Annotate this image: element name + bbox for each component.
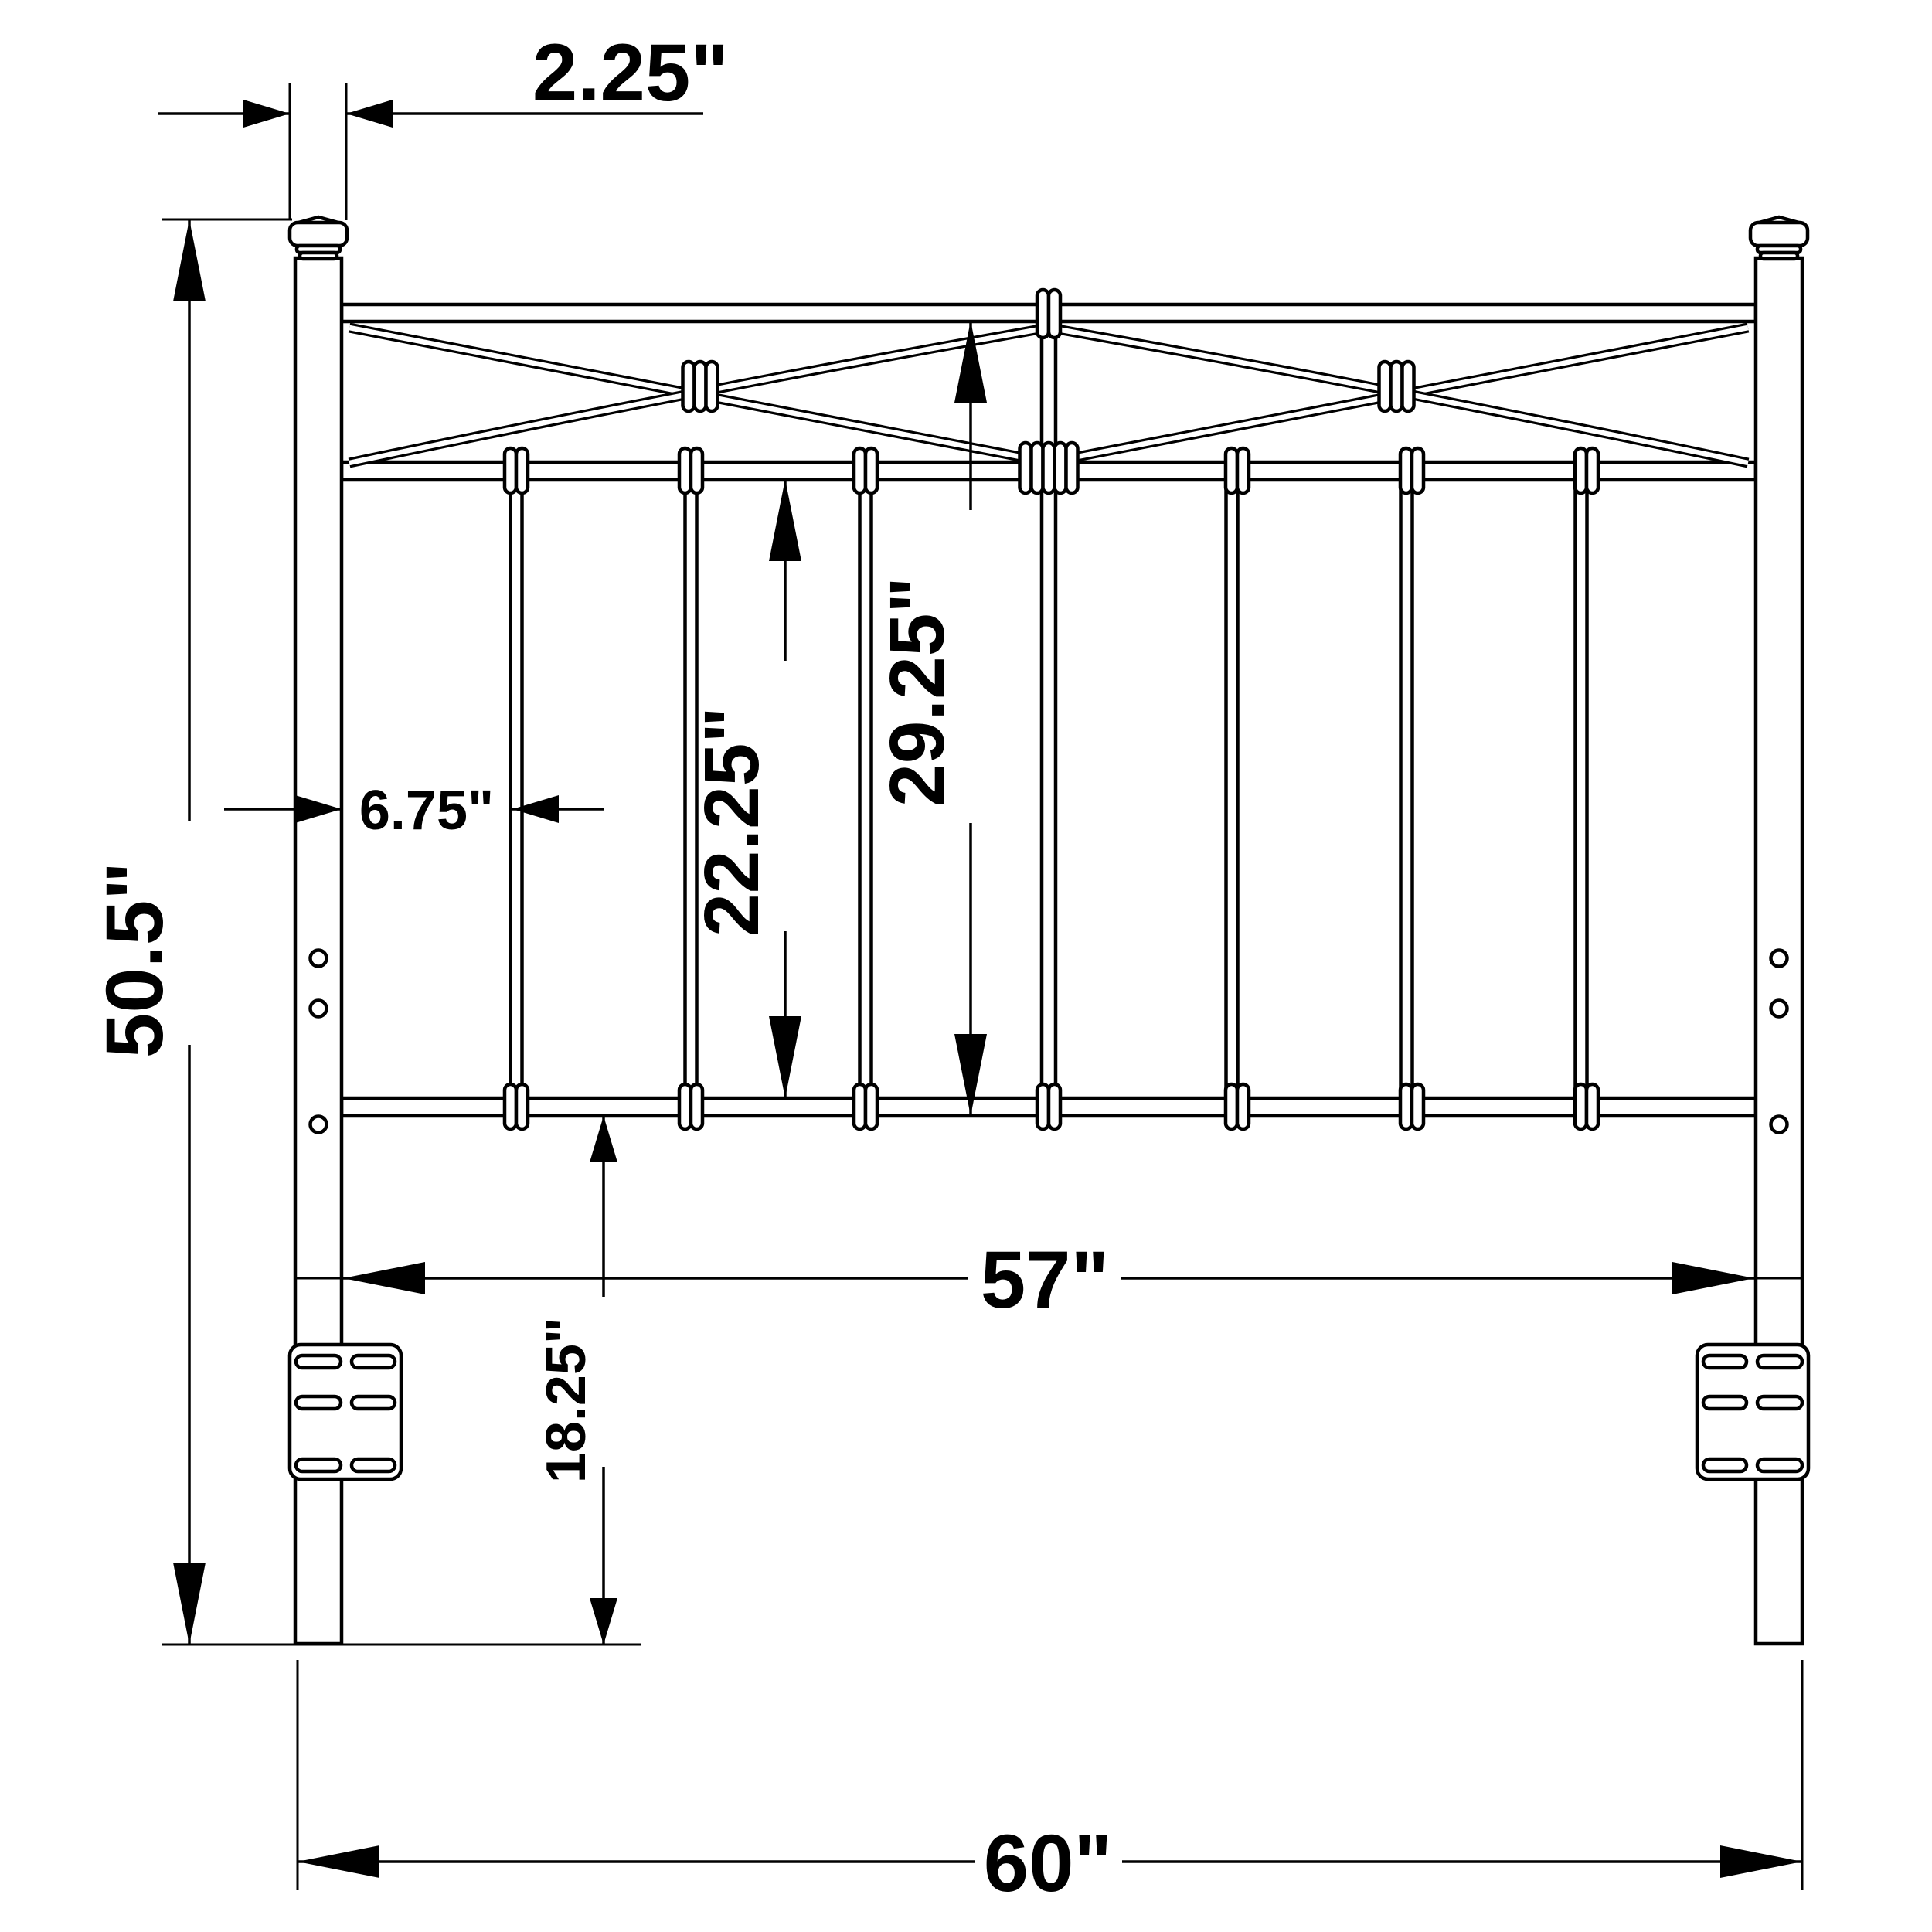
dimension-label-post-width: 2.25" xyxy=(532,28,729,118)
top-rail-center-collar xyxy=(1037,290,1060,338)
bracket-slot xyxy=(352,1355,395,1368)
spindle xyxy=(860,461,872,1117)
finial-cap xyxy=(290,223,347,246)
bracket-slot xyxy=(352,1459,395,1471)
bracket-slot xyxy=(1757,1459,1802,1471)
dimension-label-overall-width: 60" xyxy=(984,1818,1113,1909)
finial-cap xyxy=(1750,223,1808,246)
bracket-slot xyxy=(1757,1396,1802,1409)
bracket-slot xyxy=(296,1459,341,1471)
post-hole xyxy=(311,951,327,967)
dimension-label-post-to-first-spindle: 6.75" xyxy=(359,780,494,842)
bracket-slot xyxy=(1703,1459,1747,1471)
post-hole xyxy=(1771,1117,1787,1133)
spindle xyxy=(1401,461,1413,1117)
spindle xyxy=(511,461,522,1117)
left-finial xyxy=(290,217,347,259)
spindle xyxy=(1576,461,1587,1117)
collar-ring xyxy=(1403,362,1414,411)
post-hole xyxy=(1771,1001,1787,1017)
dimension-label-grille-height: 29.25" xyxy=(874,577,961,807)
dimension-label-between-posts-width: 57" xyxy=(981,1235,1110,1325)
dimension-label-spindle-section-height: 22.25" xyxy=(689,706,775,937)
bracket-slot xyxy=(1757,1355,1802,1368)
right-finial xyxy=(1750,217,1808,259)
finial-neck-ring xyxy=(300,253,337,259)
collar-ring xyxy=(706,362,718,411)
finial-neck-ring xyxy=(1760,253,1798,259)
headboard-dimension-diagram: 2.25" 50.5" 6.75" 22.25" 29.25" 57" 18.2… xyxy=(0,0,1932,1932)
right-mounting-bracket xyxy=(1697,1345,1808,1479)
dimension-label-overall-height: 50.5" xyxy=(90,862,180,1058)
bracket-slot xyxy=(296,1355,341,1368)
bracket-slot xyxy=(1703,1355,1747,1368)
background xyxy=(0,0,1932,1932)
post-hole xyxy=(311,1001,327,1017)
post-hole xyxy=(311,1117,327,1133)
bracket-slot xyxy=(1703,1396,1747,1409)
center-spindle xyxy=(1042,303,1056,1117)
left-mounting-bracket xyxy=(290,1345,401,1479)
spindle xyxy=(1226,461,1238,1117)
bracket-slot xyxy=(296,1396,341,1409)
bracket-slot xyxy=(352,1396,395,1409)
dimension-label-leg-height: 18.25" xyxy=(536,1318,597,1483)
post-hole xyxy=(1771,951,1787,967)
